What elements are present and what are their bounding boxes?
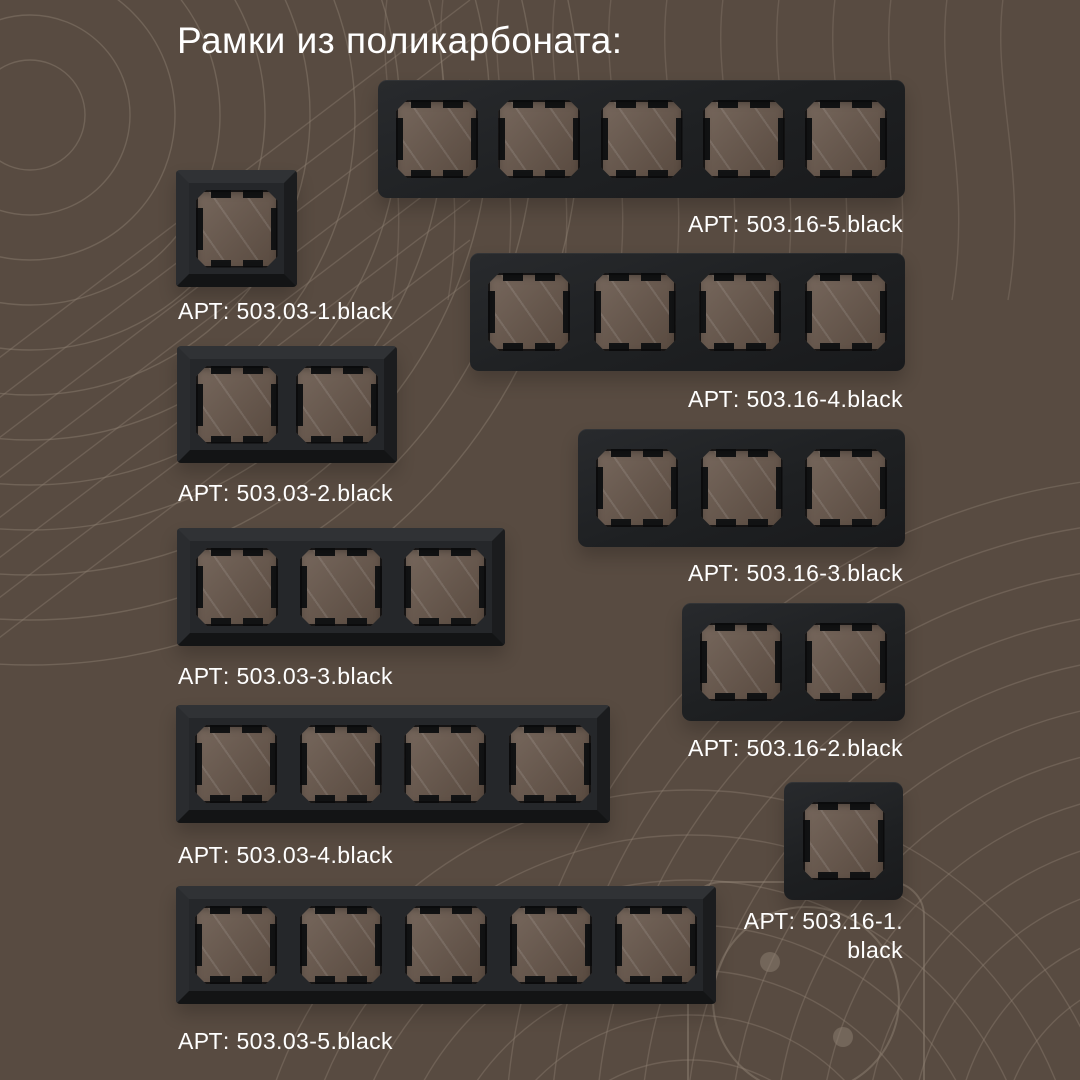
gang-opening	[498, 100, 580, 178]
gang-opening	[601, 100, 683, 178]
product-photo-503.16-1	[784, 782, 903, 900]
art-label-503.16-3: АРТ: 503.16-3.black	[688, 559, 903, 588]
gang-opening	[703, 100, 785, 178]
gang-opening	[509, 725, 591, 803]
gang-opening	[396, 100, 478, 178]
gang-opening	[805, 623, 887, 701]
art-label-503.03-5: АРТ: 503.03-5.black	[178, 1027, 393, 1056]
catalog-page: Рамки из поликарбоната: АРТ: 503.03-1.bl…	[0, 0, 1080, 1080]
gang-opening	[300, 548, 382, 626]
gang-opening	[296, 366, 378, 444]
art-label-503.03-2: АРТ: 503.03-2.black	[178, 479, 393, 508]
gang-opening	[805, 273, 887, 351]
product-photo-503.03-3	[177, 528, 505, 646]
gang-opening	[404, 725, 486, 803]
product-photo-503.03-2	[177, 346, 397, 463]
gang-opening	[615, 906, 697, 984]
gang-opening	[404, 548, 486, 626]
gang-opening	[700, 623, 782, 701]
art-label-503.16-5: АРТ: 503.16-5.black	[688, 210, 903, 239]
gang-opening	[300, 906, 382, 984]
art-label-503.16-4: АРТ: 503.16-4.black	[688, 385, 903, 414]
gang-opening	[195, 725, 277, 803]
page-title: Рамки из поликарбоната:	[177, 20, 623, 63]
gang-opening	[803, 802, 885, 880]
gang-opening	[196, 190, 278, 268]
gang-opening	[488, 273, 570, 351]
gang-opening	[701, 449, 783, 527]
gang-opening	[699, 273, 781, 351]
gang-opening	[405, 906, 487, 984]
gang-opening	[594, 273, 676, 351]
product-photo-503.16-4	[470, 253, 905, 371]
art-label-503.16-2: АРТ: 503.16-2.black	[688, 734, 903, 763]
product-photo-503.16-3	[578, 429, 905, 547]
gang-opening	[510, 906, 592, 984]
product-photo-503.03-5	[176, 886, 716, 1004]
product-photo-503.16-5	[378, 80, 905, 198]
gang-opening	[805, 100, 887, 178]
gang-opening	[805, 449, 887, 527]
gang-opening	[596, 449, 678, 527]
art-label-503.03-1: АРТ: 503.03-1.black	[178, 297, 393, 326]
art-label-503.03-3: АРТ: 503.03-3.black	[178, 662, 393, 691]
art-label-503.16-1: АРТ: 503.16-1. black	[744, 907, 903, 965]
product-photo-503.16-2	[682, 603, 905, 721]
gang-opening	[196, 366, 278, 444]
product-photo-503.03-1	[176, 170, 297, 287]
gang-opening	[300, 725, 382, 803]
gang-opening	[195, 906, 277, 984]
product-photo-503.03-4	[176, 705, 610, 823]
art-label-503.03-4: АРТ: 503.03-4.black	[178, 841, 393, 870]
gang-opening	[196, 548, 278, 626]
